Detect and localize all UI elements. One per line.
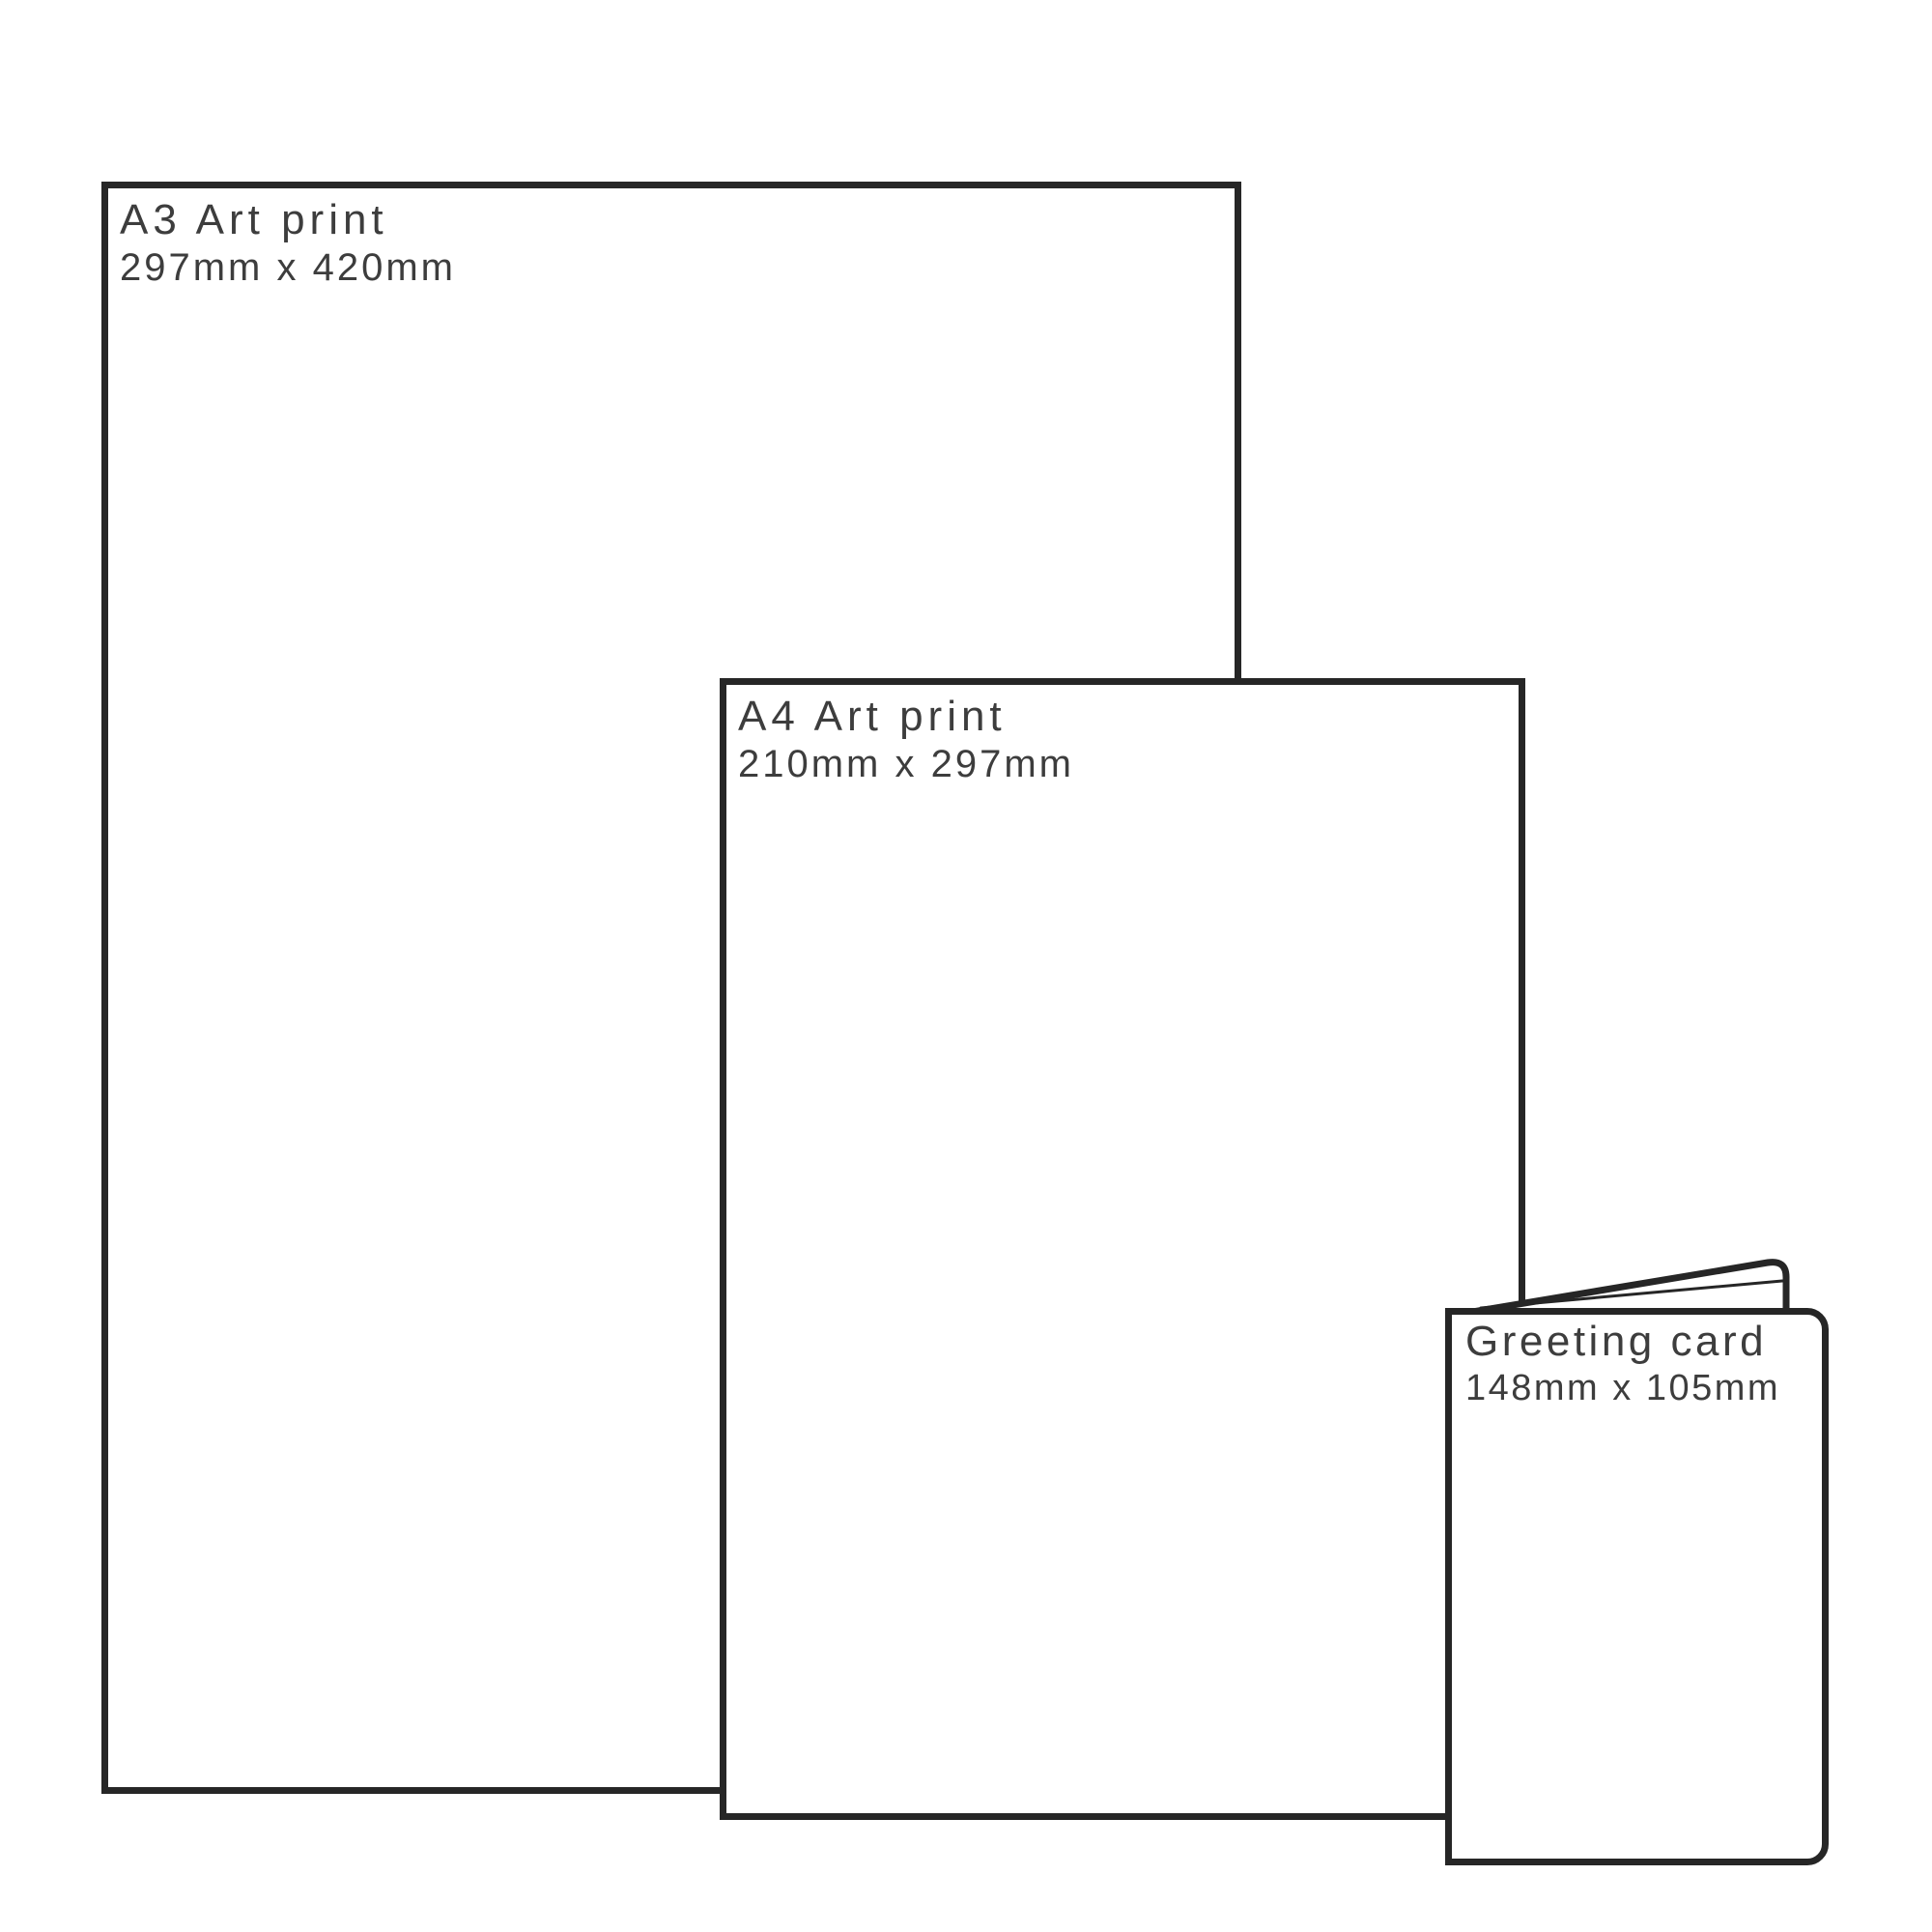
- a3-dimensions: 297mm x 420mm: [120, 245, 456, 290]
- greeting-card-title: Greeting card: [1465, 1317, 1780, 1367]
- card-fold-crease-line: [1481, 1281, 1782, 1308]
- greeting-card-front: Greeting card 148mm x 105mm: [1445, 1308, 1829, 1865]
- a4-label: A4 Art print 210mm x 297mm: [738, 692, 1074, 786]
- a3-label: A3 Art print 297mm x 420mm: [120, 195, 456, 290]
- greeting-card-dimensions: 148mm x 105mm: [1465, 1367, 1780, 1409]
- a4-dimensions: 210mm x 297mm: [738, 742, 1074, 786]
- a3-title: A3 Art print: [120, 195, 456, 245]
- a4-art-print-sheet: A4 Art print 210mm x 297mm: [720, 678, 1525, 1820]
- a4-title: A4 Art print: [738, 692, 1074, 742]
- greeting-card-label: Greeting card 148mm x 105mm: [1465, 1317, 1780, 1409]
- size-comparison-diagram: A3 Art print 297mm x 420mm A4 Art print …: [0, 0, 1932, 1932]
